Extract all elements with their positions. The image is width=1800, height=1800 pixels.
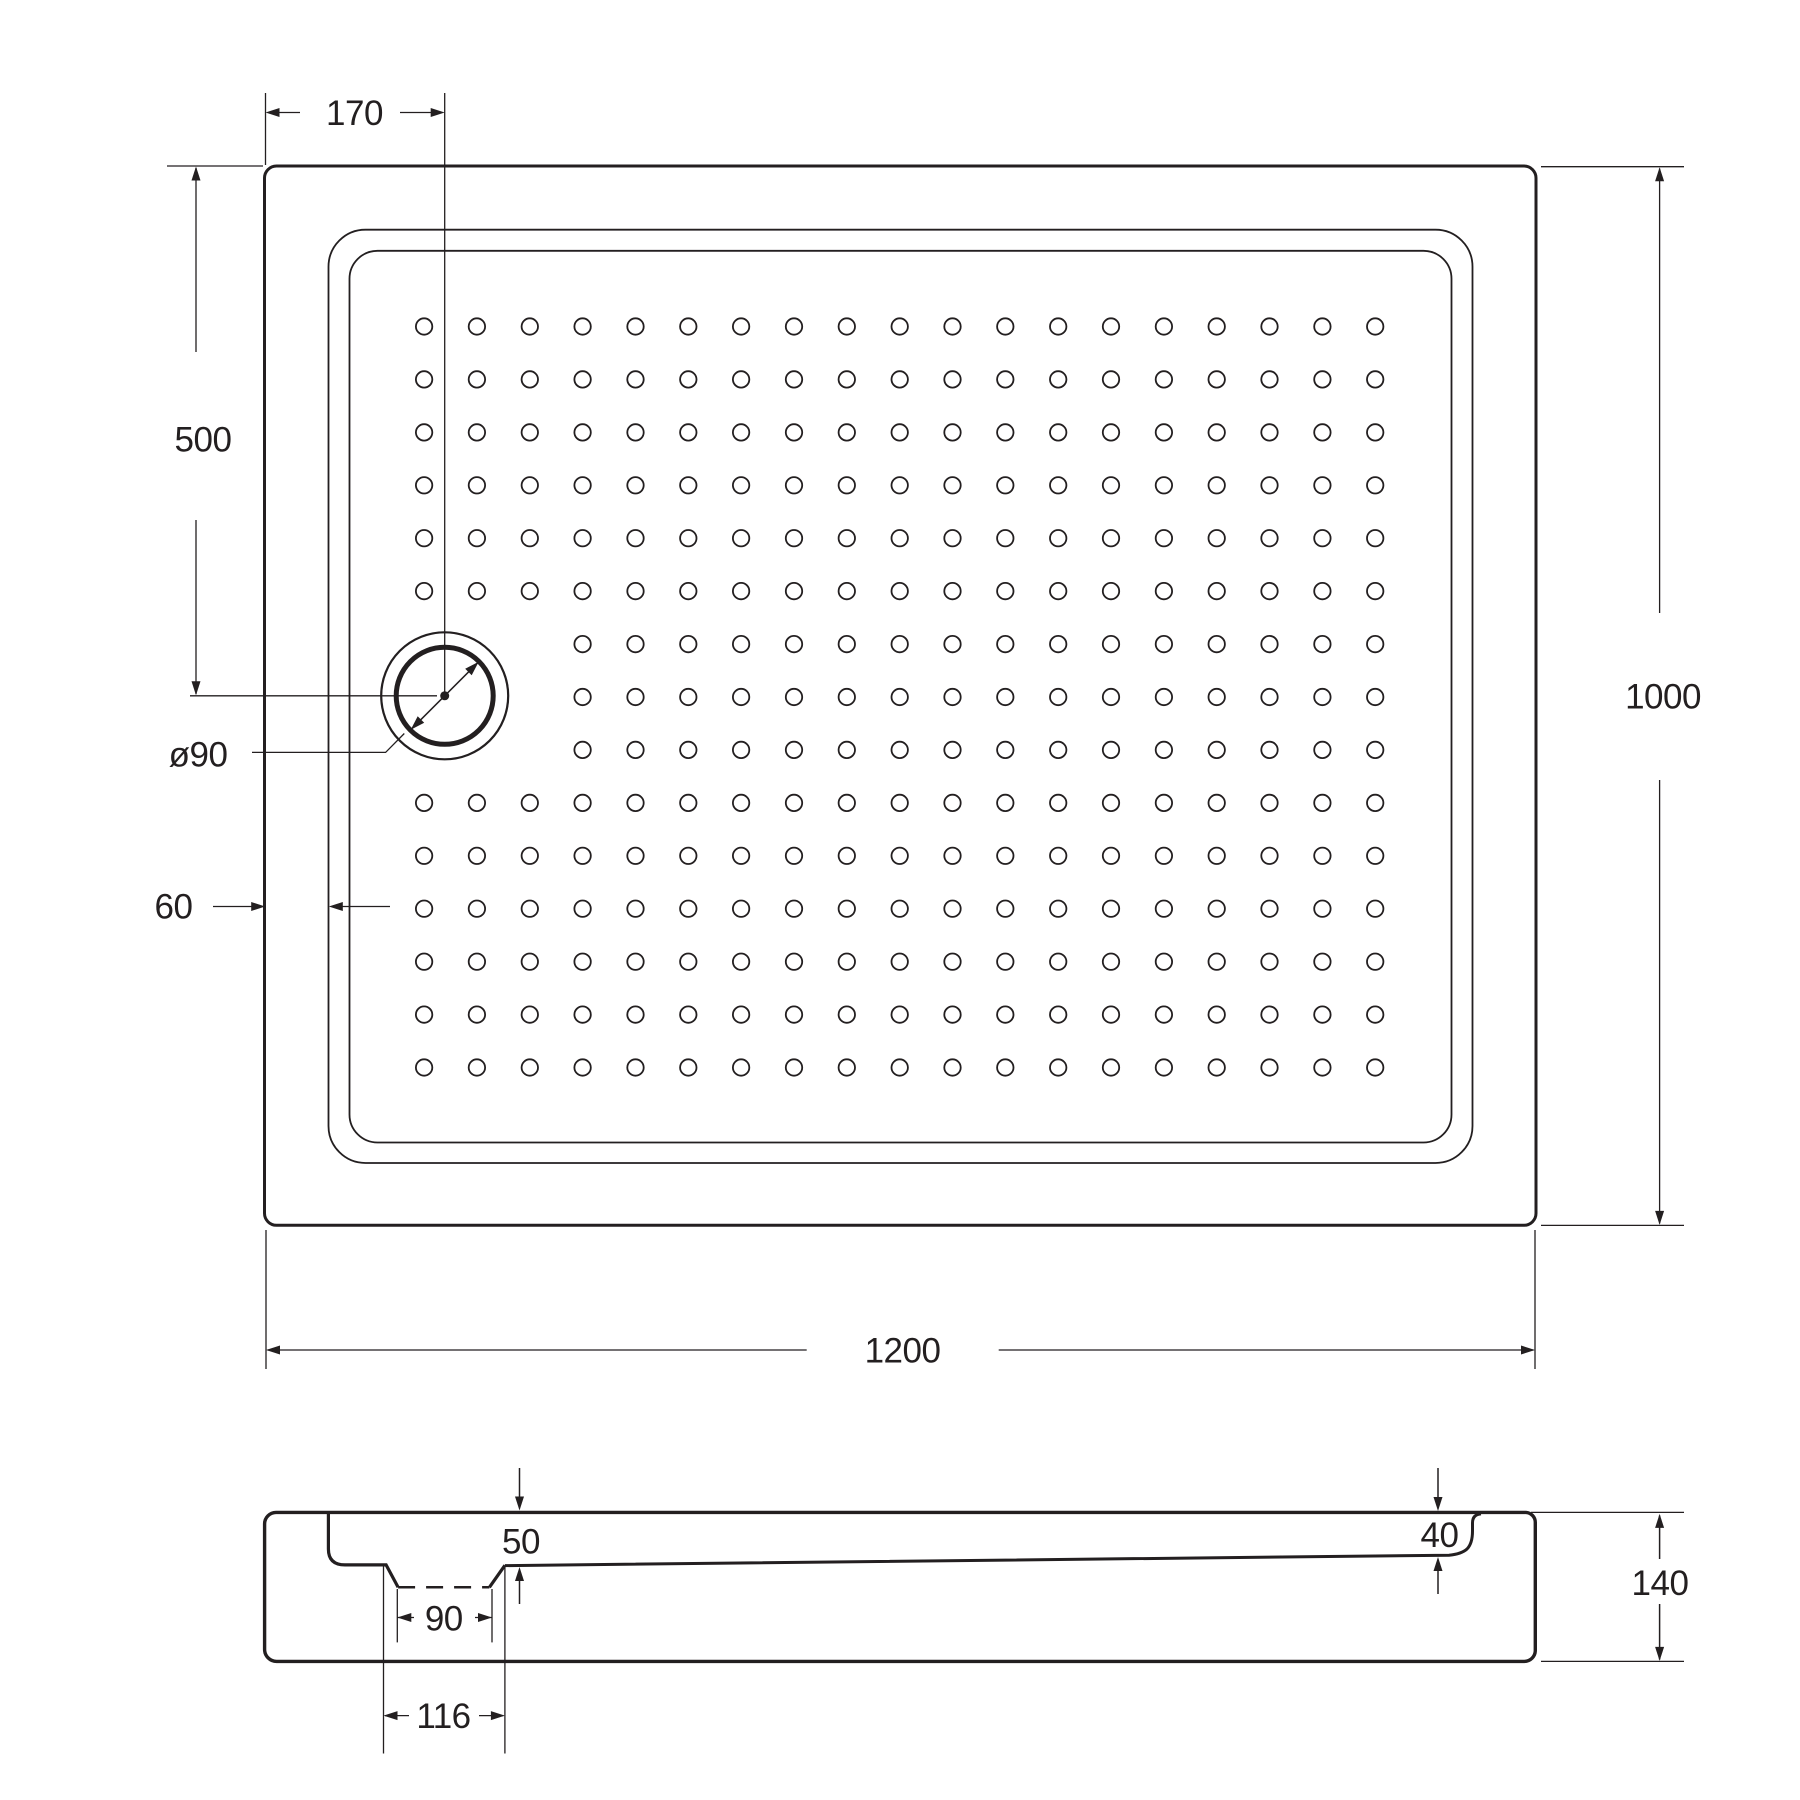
svg-text:140: 140 — [1632, 1564, 1689, 1603]
svg-text:60: 60 — [155, 888, 193, 927]
svg-text:90: 90 — [425, 1600, 463, 1639]
svg-text:170: 170 — [326, 94, 383, 133]
svg-text:1000: 1000 — [1625, 678, 1701, 717]
svg-text:500: 500 — [175, 421, 232, 460]
svg-text:40: 40 — [1421, 1516, 1459, 1555]
svg-text:1200: 1200 — [865, 1332, 941, 1371]
svg-text:116: 116 — [416, 1697, 470, 1736]
svg-text:50: 50 — [502, 1523, 540, 1562]
svg-text:ø90: ø90 — [169, 736, 228, 775]
